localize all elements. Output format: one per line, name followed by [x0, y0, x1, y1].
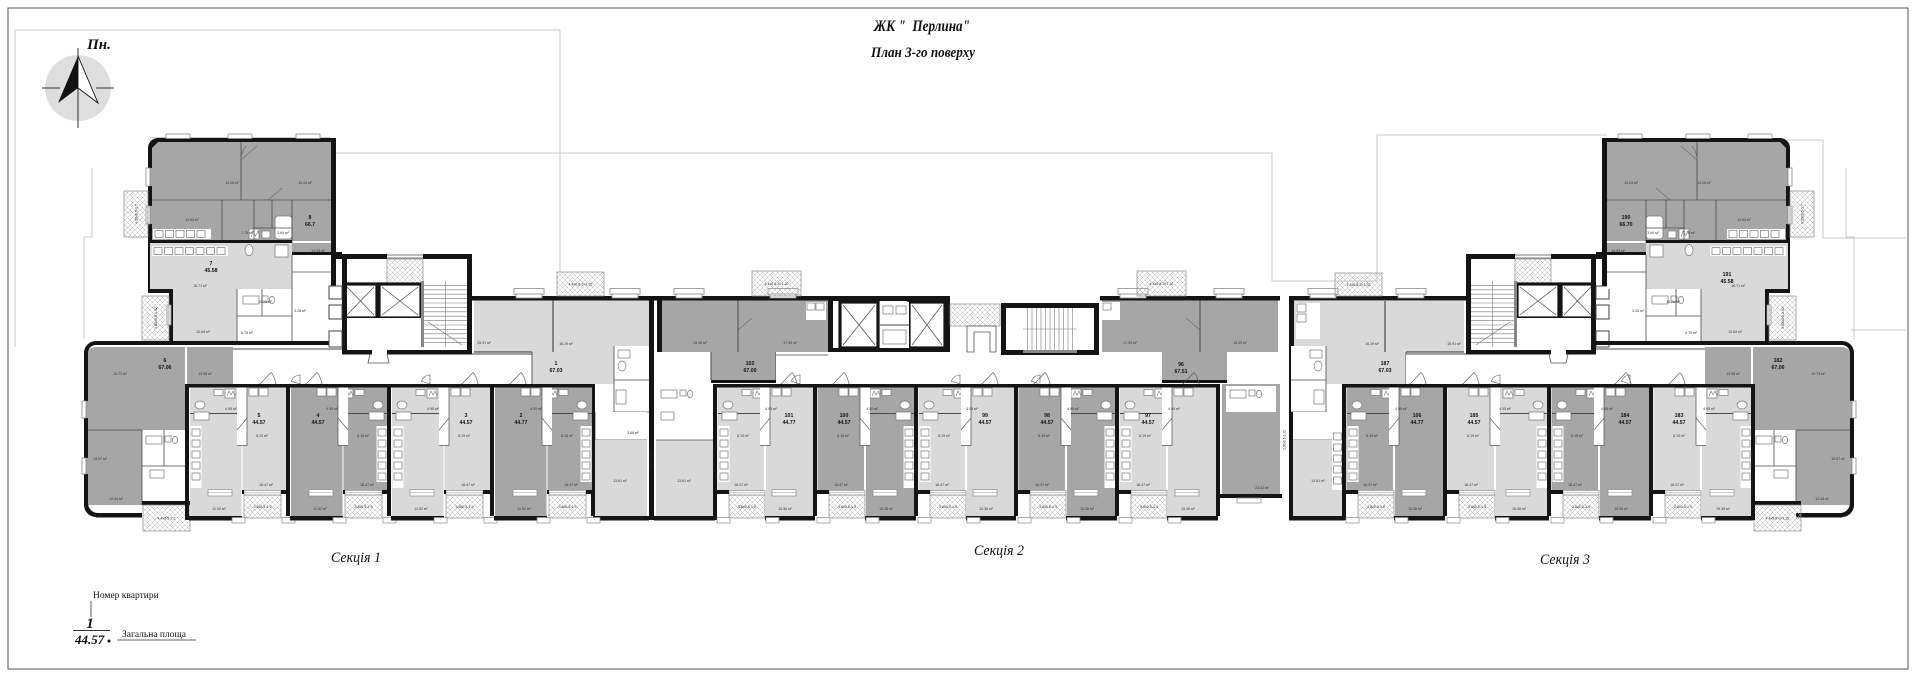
- svg-text:66.7: 66.7: [305, 222, 315, 228]
- svg-text:4.95 м²: 4.95 м²: [765, 407, 777, 411]
- svg-text:3.8х0.5-1.9: 3.8х0.5-1.9: [1468, 505, 1486, 509]
- svg-text:7.75 м²: 7.75 м²: [1683, 231, 1695, 235]
- svg-text:11.92 м²: 11.92 м²: [414, 507, 428, 511]
- svg-text:Пн.: Пн.: [86, 37, 111, 53]
- svg-text:3.64 м²: 3.64 м²: [277, 231, 289, 235]
- svg-text:1: 1: [555, 361, 558, 367]
- svg-text:5.75 м²: 5.75 м²: [1685, 331, 1697, 335]
- svg-text:Секція 1: Секція 1: [331, 550, 381, 566]
- svg-text:13.26 м²: 13.26 м²: [225, 181, 239, 185]
- svg-text:12.44 м²: 12.44 м²: [109, 497, 123, 501]
- svg-text:67.06: 67.06: [1772, 365, 1785, 371]
- svg-text:1: 1: [86, 616, 94, 632]
- svg-text:5.75 м²: 5.75 м²: [241, 331, 253, 335]
- svg-text:8.15 м²: 8.15 м²: [1038, 434, 1050, 438]
- svg-text:97: 97: [1145, 413, 1151, 419]
- svg-text:3.8х0.5-1.9: 3.8х0.5-1.9: [254, 505, 272, 509]
- svg-text:13.04 м²: 13.04 м²: [298, 181, 312, 185]
- svg-text:67.00: 67.00: [744, 368, 757, 374]
- svg-text:3: 3: [465, 413, 468, 419]
- svg-text:13.04 м²: 13.04 м²: [1624, 181, 1638, 185]
- svg-text:4.95 м²: 4.95 м²: [326, 407, 338, 411]
- svg-text:15.36 м²: 15.36 м²: [979, 507, 993, 511]
- svg-text:18.47 м²: 18.47 м²: [259, 483, 273, 487]
- svg-text:191: 191: [1723, 272, 1732, 278]
- svg-text:67.06: 67.06: [159, 365, 172, 371]
- svg-text:183: 183: [1675, 413, 1684, 419]
- svg-text:4.95 м²: 4.95 м²: [427, 407, 439, 411]
- svg-text:44.77: 44.77: [1411, 420, 1424, 426]
- svg-text:18.47 м²: 18.47 м²: [1035, 483, 1049, 487]
- svg-text:4.35х0.5-1.7: 4.35х0.5-1.7: [134, 204, 138, 224]
- svg-text:16.71 м²: 16.71 м²: [193, 284, 207, 288]
- svg-text:11.92 м²: 11.92 м²: [212, 507, 226, 511]
- svg-text:3.8х0.5-1.9: 3.8х0.5-1.9: [738, 505, 756, 509]
- svg-text:15.36 м²: 15.36 м²: [1080, 507, 1094, 511]
- svg-text:15.57 м²: 15.57 м²: [93, 457, 107, 461]
- svg-text:8.15 м²: 8.15 м²: [1571, 434, 1583, 438]
- svg-text:8.15 м²: 8.15 м²: [837, 434, 849, 438]
- svg-text:4.4х0.8-3+1.32: 4.4х0.8-3+1.32: [1346, 283, 1370, 287]
- svg-text:18.47 м²: 18.47 м²: [834, 483, 848, 487]
- svg-text:13.98 м²: 13.98 м²: [198, 372, 212, 376]
- svg-text:96: 96: [1178, 362, 1184, 368]
- svg-text:45.58: 45.58: [205, 268, 218, 274]
- svg-text:99: 99: [982, 413, 988, 419]
- svg-text:44.57: 44.57: [74, 632, 105, 647]
- svg-text:2.65х0.5-1.32: 2.65х0.5-1.32: [649, 450, 653, 470]
- svg-text:44.57: 44.57: [1468, 420, 1481, 426]
- svg-text:3.85х0.5-1.92: 3.85х0.5-1.92: [154, 307, 158, 329]
- svg-text:15.91 м²: 15.91 м²: [477, 341, 491, 345]
- svg-text:98: 98: [1044, 413, 1050, 419]
- svg-text:8.15 м²: 8.15 м²: [737, 434, 749, 438]
- svg-text:187: 187: [1381, 361, 1390, 367]
- svg-text:4: 4: [317, 413, 320, 419]
- svg-text:102: 102: [746, 361, 755, 367]
- svg-text:44.57: 44.57: [1673, 420, 1686, 426]
- svg-text:106: 106: [1413, 413, 1422, 419]
- svg-text:44.57: 44.57: [460, 420, 473, 426]
- svg-text:4.4х0.8-3+1.32: 4.4х0.8-3+1.32: [1765, 516, 1789, 520]
- svg-text:44.57: 44.57: [1619, 420, 1632, 426]
- svg-text:4.95 м²: 4.95 м²: [1067, 407, 1079, 411]
- svg-text:44.57: 44.57: [253, 420, 266, 426]
- svg-text:4.4х0.8-3+1.32: 4.4х0.8-3+1.32: [1149, 282, 1173, 286]
- svg-text:185: 185: [1470, 413, 1479, 419]
- svg-text:44.57: 44.57: [312, 420, 325, 426]
- svg-text:4.95 м²: 4.95 м²: [1499, 407, 1511, 411]
- svg-text:8.15 м²: 8.15 м²: [1139, 434, 1151, 438]
- svg-text:18.47 м²: 18.47 м²: [1464, 483, 1478, 487]
- svg-text:Секція 3: Секція 3: [1540, 552, 1590, 568]
- svg-text:4.4х0.5-2.2: 4.4х0.5-2.2: [158, 516, 176, 520]
- svg-text:13.26 м²: 13.26 м²: [1697, 181, 1711, 185]
- svg-text:12.84 м²: 12.84 м²: [196, 330, 210, 334]
- svg-text:Номер квартири: Номер квартири: [93, 591, 159, 601]
- svg-text:67.03: 67.03: [550, 368, 563, 374]
- svg-text:6: 6: [164, 358, 167, 364]
- svg-text:Секція 2: Секція 2: [974, 543, 1024, 559]
- svg-text:44.57: 44.57: [979, 420, 992, 426]
- svg-text:4.95 м²: 4.95 м²: [1601, 407, 1613, 411]
- svg-text:3.64 м²: 3.64 м²: [1647, 231, 1659, 235]
- svg-text:3.26 м²: 3.26 м²: [1632, 309, 1644, 313]
- svg-text:15.39 м²: 15.39 м²: [693, 341, 707, 345]
- svg-text:18.47 м²: 18.47 м²: [360, 483, 374, 487]
- svg-text:15.57 м²: 15.57 м²: [1831, 457, 1845, 461]
- svg-text:18.47 м²: 18.47 м²: [564, 483, 578, 487]
- svg-text:2: 2: [520, 413, 523, 419]
- svg-text:5: 5: [258, 413, 261, 419]
- svg-text:План 3-го поверху: План 3-го поверху: [870, 45, 975, 61]
- svg-text:15.36 м²: 15.36 м²: [1512, 507, 1526, 511]
- svg-text:17.09 м²: 17.09 м²: [1123, 341, 1137, 345]
- svg-text:3.85х0.5-1.92: 3.85х0.5-1.92: [1781, 307, 1785, 329]
- svg-text:13.98 м²: 13.98 м²: [1726, 372, 1740, 376]
- svg-text:8.15 м²: 8.15 м²: [1673, 434, 1685, 438]
- svg-text:44.77: 44.77: [783, 420, 796, 426]
- svg-text:100: 100: [840, 413, 849, 419]
- svg-text:15.36 м²: 15.36 м²: [778, 507, 792, 511]
- svg-text:ЖК " Перлина": ЖК " Перлина": [873, 18, 970, 35]
- svg-text:3.8х0.5-1.9: 3.8х0.5-1.9: [838, 505, 856, 509]
- svg-text:23.62 м²: 23.62 м²: [1255, 486, 1269, 490]
- svg-text:15.36 м²: 15.36 м²: [1716, 507, 1730, 511]
- svg-text:3.8х0.5-1.9: 3.8х0.5-1.9: [456, 505, 474, 509]
- svg-text:18.47 м²: 18.47 м²: [1136, 483, 1150, 487]
- svg-text:Загальна площа: Загальна площа: [122, 630, 187, 640]
- svg-text:4.95 м²: 4.95 м²: [1168, 407, 1180, 411]
- svg-text:3.8х0.5-1.9: 3.8х0.5-1.9: [1367, 505, 1385, 509]
- svg-text:8.15 м²: 8.15 м²: [561, 434, 573, 438]
- svg-text:67.03: 67.03: [1379, 368, 1392, 374]
- svg-text:13.61 м²: 13.61 м²: [613, 479, 627, 483]
- svg-text:4.95 м²: 4.95 м²: [866, 407, 878, 411]
- svg-text:3.8х0.5-1.9: 3.8х0.5-1.9: [559, 505, 577, 509]
- svg-text:8.15 м²: 8.15 м²: [357, 434, 369, 438]
- svg-text:15.91 м²: 15.91 м²: [1447, 342, 1461, 346]
- svg-text:7: 7: [210, 261, 213, 267]
- svg-text:4.95 м²: 4.95 м²: [966, 407, 978, 411]
- svg-text:8.15 м²: 8.15 м²: [458, 434, 470, 438]
- svg-text:101: 101: [785, 413, 794, 419]
- svg-text:4.95 м²: 4.95 м²: [225, 407, 237, 411]
- svg-text:15.36 м²: 15.36 м²: [1181, 507, 1195, 511]
- svg-text:11.92 м²: 11.92 м²: [517, 507, 531, 511]
- svg-text:16.19 м²: 16.19 м²: [1365, 342, 1379, 346]
- svg-text:18.47 м²: 18.47 м²: [461, 483, 475, 487]
- svg-text:18.47 м²: 18.47 м²: [734, 483, 748, 487]
- svg-text:15.36 м²: 15.36 м²: [1614, 507, 1628, 511]
- svg-text:11.94 м²: 11.94 м²: [185, 218, 199, 222]
- svg-text:12.84 м²: 12.84 м²: [1728, 330, 1742, 334]
- svg-text:3.68 м²: 3.68 м²: [627, 431, 639, 435]
- svg-text:18.47 м²: 18.47 м²: [935, 483, 949, 487]
- svg-text:66.70: 66.70: [1620, 222, 1633, 228]
- svg-text:3.8х0.5-1.9: 3.8х0.5-1.9: [1572, 505, 1590, 509]
- svg-text:190: 190: [1622, 215, 1631, 221]
- svg-text:44.57: 44.57: [1041, 420, 1054, 426]
- svg-text:8.15 м²: 8.15 м²: [256, 434, 268, 438]
- svg-text:3.26 м²: 3.26 м²: [294, 309, 306, 313]
- svg-text:44.77: 44.77: [515, 420, 528, 426]
- svg-text:16.71 м²: 16.71 м²: [1731, 284, 1745, 288]
- svg-text:16.19 м²: 16.19 м²: [559, 342, 573, 346]
- svg-text:8: 8: [309, 215, 312, 221]
- svg-text:11.94 м²: 11.94 м²: [1737, 218, 1751, 222]
- svg-text:15.26 м²: 15.26 м²: [1666, 300, 1680, 304]
- svg-text:17.09 м²: 17.09 м²: [783, 341, 797, 345]
- svg-text:44.57: 44.57: [838, 420, 851, 426]
- svg-text:15.39 м²: 15.39 м²: [1233, 341, 1247, 345]
- svg-text:3.8х0.5-1.9: 3.8х0.5-1.9: [1674, 505, 1692, 509]
- svg-text:13.73 м²: 13.73 м²: [113, 372, 127, 376]
- svg-text:8.15 м²: 8.15 м²: [938, 434, 950, 438]
- svg-text:3.8х0.5-1.9: 3.8х0.5-1.9: [1039, 505, 1057, 509]
- svg-text:2.65х0.5-1.32: 2.65х0.5-1.32: [1283, 430, 1287, 450]
- svg-text:4.35х0.5-1.7: 4.35х0.5-1.7: [1800, 204, 1804, 224]
- svg-text:18.47 м²: 18.47 м²: [1670, 483, 1684, 487]
- svg-text:7.75 м²: 7.75 м²: [241, 231, 253, 235]
- svg-text:13.61 м²: 13.61 м²: [1311, 479, 1325, 483]
- svg-text:15.36 м²: 15.36 м²: [879, 507, 893, 511]
- svg-text:4.95 м²: 4.95 м²: [530, 407, 542, 411]
- svg-text:15.36 м²: 15.36 м²: [1408, 507, 1422, 511]
- svg-text:3.8х0.5-1.9: 3.8х0.5-1.9: [939, 505, 957, 509]
- svg-text:11.92 м²: 11.92 м²: [313, 507, 327, 511]
- svg-text:13.61 м²: 13.61 м²: [677, 479, 691, 483]
- svg-text:3.8х0.5-1.9: 3.8х0.5-1.9: [1140, 505, 1158, 509]
- svg-text:18.47 м²: 18.47 м²: [1568, 483, 1582, 487]
- svg-text:12.44 м²: 12.44 м²: [1815, 497, 1829, 501]
- svg-text:3.8х0.5-1.9: 3.8х0.5-1.9: [355, 505, 373, 509]
- svg-text:15.26 м²: 15.26 м²: [258, 300, 272, 304]
- svg-text:18.47 м²: 18.47 м²: [1363, 483, 1377, 487]
- svg-text:8.15 м²: 8.15 м²: [1467, 434, 1479, 438]
- svg-text:8.15 м²: 8.15 м²: [1366, 434, 1378, 438]
- svg-text:44.57: 44.57: [1142, 420, 1155, 426]
- svg-text:4.95 м²: 4.95 м²: [1703, 407, 1715, 411]
- svg-text:13.73 м²: 13.73 м²: [1811, 372, 1825, 376]
- svg-text:4.4х0.8-3+1.32: 4.4х0.8-3+1.32: [568, 282, 592, 286]
- svg-text:182: 182: [1774, 358, 1783, 364]
- svg-text:4.4х0.8-3+1.32: 4.4х0.8-3+1.32: [764, 282, 788, 286]
- svg-text:4.95 м²: 4.95 м²: [1395, 407, 1407, 411]
- svg-text:184: 184: [1621, 413, 1630, 419]
- svg-text:67.51: 67.51: [1175, 369, 1188, 375]
